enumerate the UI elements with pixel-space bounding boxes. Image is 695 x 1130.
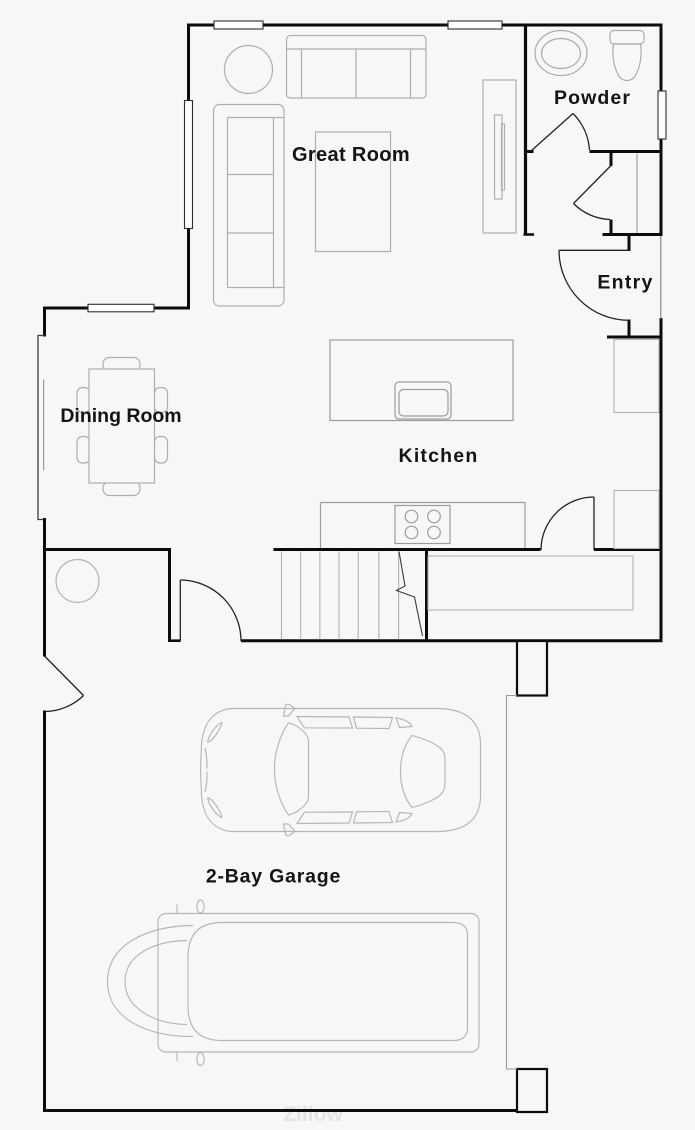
svg-text:2-Bay Garage: 2-Bay Garage bbox=[206, 866, 341, 888]
svg-text:Kitchen: Kitchen bbox=[399, 445, 479, 467]
svg-text:Zillow: Zillow bbox=[283, 1103, 343, 1126]
svg-text:Dining Room: Dining Room bbox=[60, 405, 181, 427]
svg-text:Powder: Powder bbox=[554, 87, 631, 109]
svg-text:Great Room: Great Room bbox=[292, 144, 410, 166]
svg-text:Entry: Entry bbox=[597, 272, 653, 294]
